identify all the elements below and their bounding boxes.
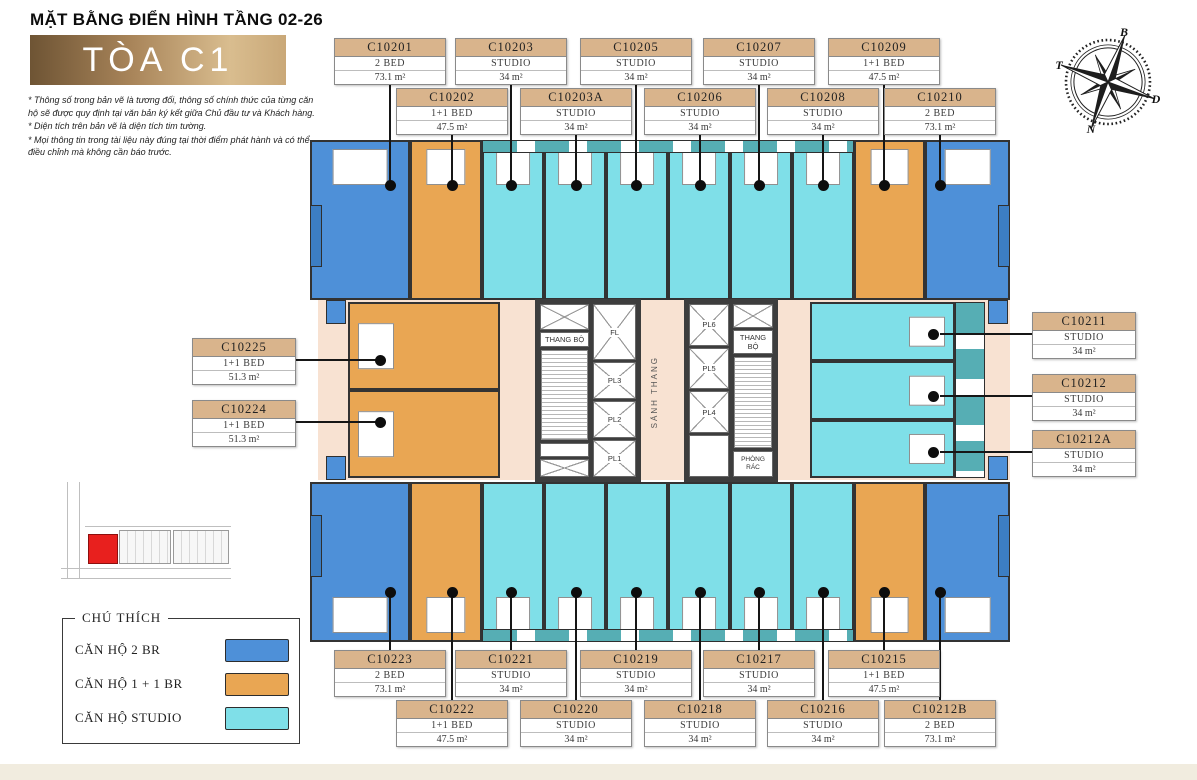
unit-type: STUDIO bbox=[581, 669, 691, 683]
unit-type: 2 BED bbox=[885, 107, 995, 121]
unit-callout-C10209: C102091+1 BED47.5 m² bbox=[828, 38, 940, 85]
unit-callout-C10212: C10212STUDIO34 m² bbox=[1032, 374, 1136, 421]
lobby-label: SẢNH THANG bbox=[650, 356, 659, 428]
callout-dot bbox=[631, 587, 642, 598]
furniture-hint bbox=[909, 434, 945, 464]
unit-code: C10215 bbox=[829, 651, 939, 669]
unit-region-C10223 bbox=[310, 482, 410, 642]
unit-callout-C10223: C102232 BED73.1 m² bbox=[334, 650, 446, 697]
corner-blue-bit bbox=[988, 456, 1008, 480]
road-line bbox=[61, 578, 231, 579]
balcony-blue-left-top bbox=[310, 205, 322, 267]
unit-callout-C10207: C10207STUDIO34 m² bbox=[703, 38, 815, 85]
callout-dot bbox=[935, 180, 946, 191]
unit-type: 1+1 BED bbox=[829, 57, 939, 71]
callout-dot bbox=[447, 180, 458, 191]
callout-line bbox=[296, 359, 376, 361]
current-building-highlight bbox=[88, 534, 118, 564]
callout-line bbox=[635, 592, 637, 650]
unit-area: 34 m² bbox=[1033, 345, 1135, 358]
unit-type: STUDIO bbox=[456, 669, 566, 683]
furniture-hint bbox=[426, 149, 465, 185]
unit-region-C10225 bbox=[348, 302, 500, 390]
unit-code: C10218 bbox=[645, 701, 755, 719]
shaft-cell bbox=[540, 459, 589, 477]
callout-dot bbox=[506, 587, 517, 598]
unit-code: C10203 bbox=[456, 39, 566, 57]
unit-type: 1+1 BED bbox=[397, 107, 507, 121]
callout-dot bbox=[385, 180, 396, 191]
callout-dot bbox=[928, 447, 939, 458]
callout-dot bbox=[818, 587, 829, 598]
unit-region-C10209 bbox=[854, 140, 925, 300]
furniture-hint bbox=[909, 316, 945, 347]
unit-area: 73.1 m² bbox=[885, 121, 995, 134]
unit-area: 34 m² bbox=[768, 733, 878, 746]
neighbor-building bbox=[119, 530, 171, 564]
furniture-hint bbox=[909, 375, 945, 406]
stair-label-right: THANG BỘ bbox=[733, 330, 773, 354]
shaft-cell bbox=[733, 304, 773, 328]
building-name: TÒA C1 bbox=[83, 41, 234, 80]
disclaimer-notes: * Thông số trong bản vẽ là tương đối, th… bbox=[28, 94, 320, 160]
unit-type: 1+1 BED bbox=[193, 419, 295, 433]
unit-callout-C10211: C10211STUDIO34 m² bbox=[1032, 312, 1136, 359]
callout-dot bbox=[935, 587, 946, 598]
unit-area: 47.5 m² bbox=[829, 683, 939, 696]
callout-line bbox=[822, 592, 824, 700]
callout-line bbox=[451, 592, 453, 700]
callout-line bbox=[758, 84, 760, 186]
unit-callout-C10203A: C10203ASTUDIO34 m² bbox=[520, 88, 632, 135]
callout-line bbox=[575, 134, 577, 186]
stair-label-left: THANG BỘ bbox=[540, 332, 589, 347]
elevator-pl4: PL4 bbox=[689, 391, 729, 433]
callout-line bbox=[940, 451, 1032, 453]
balcony-blue-right-bottom bbox=[998, 515, 1010, 577]
furniture-hint bbox=[333, 597, 388, 633]
unit-region-C10221 bbox=[482, 482, 544, 642]
unit-region-C10201 bbox=[310, 140, 410, 300]
callout-dot bbox=[571, 587, 582, 598]
unit-type: STUDIO bbox=[456, 57, 566, 71]
unit-code: C10212B bbox=[885, 701, 995, 719]
unit-code: C10216 bbox=[768, 701, 878, 719]
unit-region-C10219 bbox=[606, 482, 668, 642]
callout-line bbox=[699, 134, 701, 186]
callout-line bbox=[575, 592, 577, 700]
unit-type: 1+1 BED bbox=[829, 669, 939, 683]
staircase-right bbox=[734, 357, 772, 448]
callout-line bbox=[296, 421, 376, 423]
callout-dot bbox=[754, 180, 765, 191]
callout-dot bbox=[631, 180, 642, 191]
unit-area: 34 m² bbox=[521, 733, 631, 746]
unit-area: 73.1 m² bbox=[335, 71, 445, 84]
unit-area: 47.5 m² bbox=[397, 733, 507, 746]
unit-area: 34 m² bbox=[581, 71, 691, 84]
callout-dot bbox=[571, 180, 582, 191]
unit-code: C10205 bbox=[581, 39, 691, 57]
unit-code: C10225 bbox=[193, 339, 295, 357]
elevator-fl: FL bbox=[593, 304, 636, 360]
page-title: MẶT BẰNG ĐIỂN HÌNH TẦNG 02-26 bbox=[30, 10, 323, 30]
unit-area: 34 m² bbox=[704, 683, 814, 696]
callout-line bbox=[389, 84, 391, 186]
unit-region-C10215 bbox=[854, 482, 925, 642]
elevator-pl1: PL1 bbox=[593, 440, 636, 477]
unit-code: C10207 bbox=[704, 39, 814, 57]
callout-line bbox=[510, 84, 512, 186]
unit-type: STUDIO bbox=[521, 719, 631, 733]
balcony-blue-right-top bbox=[998, 205, 1010, 267]
unit-area: 34 m² bbox=[645, 733, 755, 746]
compass-icon: B T D N bbox=[1048, 22, 1168, 142]
footer-strip bbox=[0, 764, 1197, 780]
floorplan-page: MẶT BẰNG ĐIỂN HÌNH TẦNG 02-26 TÒA C1 * T… bbox=[0, 0, 1197, 780]
elevator-pl3: PL3 bbox=[593, 362, 636, 399]
unit-type: STUDIO bbox=[1033, 331, 1135, 345]
legend-item-label: CĂN HỘ STUDIO bbox=[75, 710, 182, 726]
furniture-hint bbox=[870, 149, 909, 185]
unit-code: C10220 bbox=[521, 701, 631, 719]
unit-code: C10211 bbox=[1033, 313, 1135, 331]
unit-region-C10203 bbox=[482, 140, 544, 300]
corner-blue-bit bbox=[326, 300, 346, 324]
unit-area: 34 m² bbox=[456, 683, 566, 696]
callout-dot bbox=[818, 180, 829, 191]
unit-code: C10223 bbox=[335, 651, 445, 669]
unit-code: C10212A bbox=[1033, 431, 1135, 449]
legend-title: CHÚ THÍCH bbox=[75, 610, 168, 626]
neighbor-building bbox=[173, 530, 229, 564]
elevator-pl2: PL2 bbox=[593, 401, 636, 438]
callout-line bbox=[758, 592, 760, 650]
trash-room: PHÒNG RÁC bbox=[733, 451, 773, 477]
unit-area: 34 m² bbox=[1033, 463, 1135, 476]
callout-dot bbox=[695, 180, 706, 191]
unit-callout-C10218: C10218STUDIO34 m² bbox=[644, 700, 756, 747]
corner-blue-bit bbox=[326, 456, 346, 480]
corner-blue-bit bbox=[988, 300, 1008, 324]
unit-callout-C10221: C10221STUDIO34 m² bbox=[455, 650, 567, 697]
callout-dot bbox=[879, 180, 890, 191]
unit-callout-C10201: C102012 BED73.1 m² bbox=[334, 38, 446, 85]
callout-line bbox=[940, 395, 1032, 397]
unit-area: 34 m² bbox=[521, 121, 631, 134]
road-line bbox=[79, 482, 80, 578]
unit-type: STUDIO bbox=[1033, 449, 1135, 463]
unit-callout-C10220: C10220STUDIO34 m² bbox=[520, 700, 632, 747]
unit-code: C10210 bbox=[885, 89, 995, 107]
unit-type: 2 BED bbox=[335, 669, 445, 683]
unit-code: C10203A bbox=[521, 89, 631, 107]
unit-area: 47.5 m² bbox=[829, 71, 939, 84]
unit-area: 34 m² bbox=[645, 121, 755, 134]
callout-line bbox=[451, 134, 453, 186]
unit-code: C10222 bbox=[397, 701, 507, 719]
callout-dot bbox=[928, 391, 939, 402]
furniture-hint bbox=[426, 597, 465, 633]
unit-code: C10208 bbox=[768, 89, 878, 107]
furniture-hint bbox=[944, 149, 991, 185]
unit-callout-C10202: C102021+1 BED47.5 m² bbox=[396, 88, 508, 135]
callout-line bbox=[699, 592, 701, 700]
legend-color-swatch bbox=[225, 639, 289, 662]
unit-type: STUDIO bbox=[768, 107, 878, 121]
building-banner: TÒA C1 bbox=[30, 35, 286, 85]
unit-area: 34 m² bbox=[704, 71, 814, 84]
callout-line bbox=[510, 592, 512, 650]
furniture-hint bbox=[620, 597, 654, 633]
unit-type: STUDIO bbox=[1033, 393, 1135, 407]
unit-code: C10206 bbox=[645, 89, 755, 107]
compass-west-label: T bbox=[1055, 58, 1063, 72]
unit-code: C10221 bbox=[456, 651, 566, 669]
unit-area: 73.1 m² bbox=[335, 683, 445, 696]
legend-item: CĂN HỘ 2 BR bbox=[75, 637, 289, 663]
callout-dot bbox=[447, 587, 458, 598]
unit-area: 34 m² bbox=[1033, 407, 1135, 420]
legend-item-label: CĂN HỘ 2 BR bbox=[75, 642, 160, 658]
callout-dot bbox=[385, 587, 396, 598]
balcony-blue-left-bottom bbox=[310, 515, 322, 577]
unit-callout-C10208: C10208STUDIO34 m² bbox=[767, 88, 879, 135]
furniture-hint bbox=[944, 597, 991, 633]
unit-area: 34 m² bbox=[456, 71, 566, 84]
unit-callout-C10210: C102102 BED73.1 m² bbox=[884, 88, 996, 135]
unit-area: 51.3 m² bbox=[193, 433, 295, 446]
callout-line bbox=[389, 592, 391, 650]
unit-callout-C10225: C102251+1 BED51.3 m² bbox=[192, 338, 296, 385]
unit-type: 2 BED bbox=[335, 57, 445, 71]
unit-callout-C10212B: C10212B2 BED73.1 m² bbox=[884, 700, 996, 747]
callout-dot bbox=[506, 180, 517, 191]
callout-dot bbox=[879, 587, 890, 598]
unit-region-C10202 bbox=[410, 140, 482, 300]
unit-callout-C10203: C10203STUDIO34 m² bbox=[455, 38, 567, 85]
unit-code: C10202 bbox=[397, 89, 507, 107]
callout-dot bbox=[375, 355, 386, 366]
callout-line bbox=[940, 333, 1032, 335]
unit-callout-C10212A: C10212ASTUDIO34 m² bbox=[1032, 430, 1136, 477]
lobby-label-wrap: SẢNH THANG bbox=[650, 345, 659, 440]
furniture-hint bbox=[333, 149, 388, 185]
building-row-line bbox=[85, 526, 231, 527]
callout-dot bbox=[754, 587, 765, 598]
service-cell bbox=[689, 435, 729, 477]
unit-type: STUDIO bbox=[704, 669, 814, 683]
unit-code: C10217 bbox=[704, 651, 814, 669]
unit-area: 34 m² bbox=[581, 683, 691, 696]
staircase-left bbox=[541, 350, 588, 440]
unit-type: STUDIO bbox=[645, 107, 755, 121]
unit-area: 34 m² bbox=[768, 121, 878, 134]
callout-line bbox=[883, 592, 885, 650]
legend-item: CĂN HỘ STUDIO bbox=[75, 705, 289, 731]
elevator-pl5: PL5 bbox=[689, 348, 729, 390]
stair-elevator-core-right: PL6 PL5 PL4 THANG BỘ PHÒNG RÁC bbox=[684, 299, 778, 482]
unit-type: 1+1 BED bbox=[193, 357, 295, 371]
callout-dot bbox=[695, 587, 706, 598]
balcony-strip-top bbox=[482, 140, 854, 153]
callout-dot bbox=[928, 329, 939, 340]
unit-callout-C10216: C10216STUDIO34 m² bbox=[767, 700, 879, 747]
unit-type: STUDIO bbox=[704, 57, 814, 71]
unit-region-C10222 bbox=[410, 482, 482, 642]
callout-dot bbox=[375, 417, 386, 428]
road-line bbox=[61, 568, 231, 569]
unit-type: STUDIO bbox=[768, 719, 878, 733]
shaft-cell bbox=[540, 304, 589, 330]
unit-type: STUDIO bbox=[645, 719, 755, 733]
furniture-hint bbox=[870, 597, 909, 633]
legend-color-swatch bbox=[225, 673, 289, 696]
unit-type: STUDIO bbox=[581, 57, 691, 71]
callout-line bbox=[635, 84, 637, 186]
unit-code: C10201 bbox=[335, 39, 445, 57]
unit-callout-C10217: C10217STUDIO34 m² bbox=[703, 650, 815, 697]
unit-region-C10207 bbox=[730, 140, 792, 300]
site-locator-map bbox=[55, 478, 235, 582]
road-line bbox=[67, 482, 68, 578]
unit-callout-C10215: C102151+1 BED47.5 m² bbox=[828, 650, 940, 697]
balcony-strip-bottom bbox=[482, 629, 854, 642]
compass-south-label: N bbox=[1086, 122, 1097, 136]
legend: CHÚ THÍCH CĂN HỘ 2 BRCĂN HỘ 1 + 1 BRCĂN … bbox=[62, 618, 300, 744]
elevator-pl6: PL6 bbox=[689, 304, 729, 346]
furniture-hint bbox=[744, 597, 778, 633]
unit-type: STUDIO bbox=[521, 107, 631, 121]
callout-line bbox=[822, 134, 824, 186]
note-line: * Thông số trong bản vẽ là tương đối, th… bbox=[28, 94, 320, 119]
legend-item-label: CĂN HỘ 1 + 1 BR bbox=[75, 676, 183, 692]
unit-callout-C10205: C10205STUDIO34 m² bbox=[580, 38, 692, 85]
unit-callout-C10219: C10219STUDIO34 m² bbox=[580, 650, 692, 697]
unit-type: 1+1 BED bbox=[397, 719, 507, 733]
note-line: * Diện tích trên bản vẽ là diện tích tim… bbox=[28, 120, 320, 133]
compass-east-label: D bbox=[1151, 92, 1161, 106]
legend-item: CĂN HỘ 1 + 1 BR bbox=[75, 671, 289, 697]
unit-code: C10219 bbox=[581, 651, 691, 669]
callout-line bbox=[939, 134, 941, 186]
unit-code: C10212 bbox=[1033, 375, 1135, 393]
unit-callout-C10224: C102241+1 BED51.3 m² bbox=[192, 400, 296, 447]
unit-area: 51.3 m² bbox=[193, 371, 295, 384]
unit-type: 2 BED bbox=[885, 719, 995, 733]
note-line: * Mọi thông tin trong tài liệu này đúng … bbox=[28, 134, 320, 159]
unit-callout-C10206: C10206STUDIO34 m² bbox=[644, 88, 756, 135]
legend-color-swatch bbox=[225, 707, 289, 730]
unit-area: 47.5 m² bbox=[397, 121, 507, 134]
landing-cell bbox=[540, 443, 589, 457]
stair-elevator-core-left: THANG BỘ FL PL3 PL2 PL1 bbox=[535, 299, 641, 482]
unit-region-C10205 bbox=[606, 140, 668, 300]
unit-callout-C10222: C102221+1 BED47.5 m² bbox=[396, 700, 508, 747]
unit-code: C10209 bbox=[829, 39, 939, 57]
furniture-hint bbox=[496, 597, 530, 633]
compass-north-label: B bbox=[1119, 25, 1128, 39]
unit-region-C10224 bbox=[348, 390, 500, 478]
unit-region-C10217 bbox=[730, 482, 792, 642]
unit-area: 73.1 m² bbox=[885, 733, 995, 746]
unit-code: C10224 bbox=[193, 401, 295, 419]
